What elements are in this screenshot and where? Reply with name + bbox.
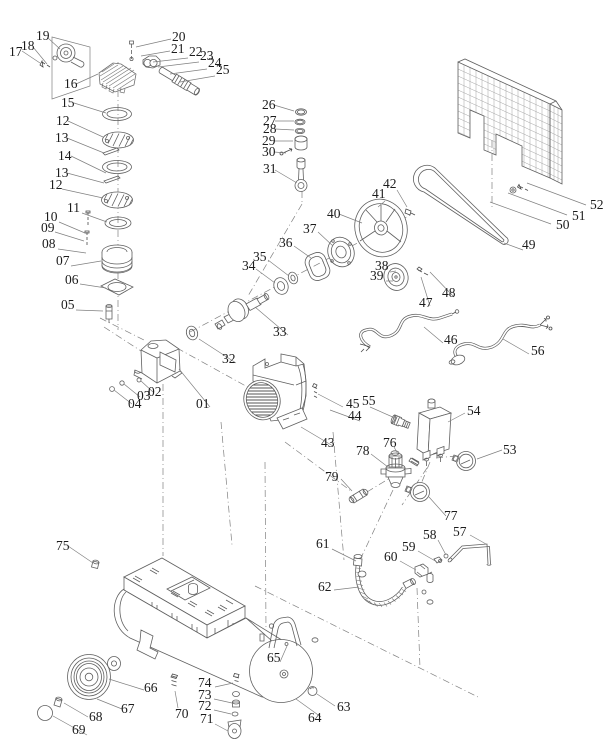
svg-text:40: 40 (327, 206, 341, 221)
svg-text:76: 76 (383, 435, 397, 450)
svg-text:47: 47 (419, 295, 433, 310)
svg-text:30: 30 (262, 144, 276, 159)
svg-text:63: 63 (337, 699, 351, 714)
svg-text:75: 75 (56, 538, 70, 553)
svg-text:60: 60 (384, 549, 398, 564)
svg-text:12: 12 (49, 177, 63, 192)
svg-text:44: 44 (348, 408, 362, 423)
svg-text:68: 68 (89, 709, 103, 724)
svg-text:59: 59 (402, 539, 416, 554)
svg-text:62: 62 (318, 579, 332, 594)
svg-text:42: 42 (383, 176, 397, 191)
svg-text:54: 54 (467, 403, 481, 418)
svg-text:57: 57 (453, 524, 467, 539)
svg-text:11: 11 (67, 200, 80, 215)
svg-text:48: 48 (442, 285, 456, 300)
svg-text:12: 12 (56, 113, 70, 128)
svg-text:49: 49 (522, 237, 536, 252)
svg-text:13: 13 (55, 130, 69, 145)
svg-text:79: 79 (325, 469, 339, 484)
svg-text:46: 46 (444, 332, 458, 347)
svg-text:08: 08 (42, 236, 56, 251)
svg-text:53: 53 (503, 442, 517, 457)
svg-text:71: 71 (200, 711, 214, 726)
svg-text:05: 05 (61, 297, 75, 312)
svg-text:43: 43 (321, 435, 335, 450)
svg-text:58: 58 (423, 527, 437, 542)
svg-text:04: 04 (128, 396, 142, 411)
svg-text:51: 51 (572, 208, 586, 223)
svg-text:52: 52 (590, 197, 604, 212)
svg-text:36: 36 (279, 235, 293, 250)
svg-text:33: 33 (273, 324, 287, 339)
svg-text:50: 50 (556, 217, 570, 232)
svg-text:21: 21 (171, 41, 185, 56)
svg-text:39: 39 (370, 268, 384, 283)
svg-text:66: 66 (144, 680, 158, 695)
svg-text:07: 07 (56, 253, 70, 268)
svg-text:74: 74 (198, 675, 212, 690)
svg-text:67: 67 (121, 701, 135, 716)
svg-text:37: 37 (303, 221, 317, 236)
svg-text:64: 64 (308, 710, 322, 725)
svg-text:18: 18 (21, 38, 35, 53)
svg-text:69: 69 (72, 722, 86, 737)
svg-text:61: 61 (316, 536, 330, 551)
svg-text:65: 65 (267, 650, 281, 665)
svg-text:70: 70 (175, 706, 189, 721)
svg-text:31: 31 (263, 161, 277, 176)
svg-text:25: 25 (216, 62, 230, 77)
svg-text:55: 55 (362, 393, 376, 408)
svg-text:32: 32 (222, 351, 236, 366)
svg-text:19: 19 (36, 28, 50, 43)
svg-text:15: 15 (61, 95, 75, 110)
svg-text:34: 34 (242, 258, 256, 273)
svg-text:16: 16 (64, 76, 78, 91)
svg-text:26: 26 (262, 97, 276, 112)
svg-text:78: 78 (356, 443, 370, 458)
svg-text:09: 09 (41, 220, 55, 235)
svg-text:56: 56 (531, 343, 545, 358)
svg-text:06: 06 (65, 272, 79, 287)
svg-text:77: 77 (444, 508, 458, 523)
svg-text:14: 14 (58, 148, 72, 163)
svg-text:01: 01 (196, 396, 210, 411)
